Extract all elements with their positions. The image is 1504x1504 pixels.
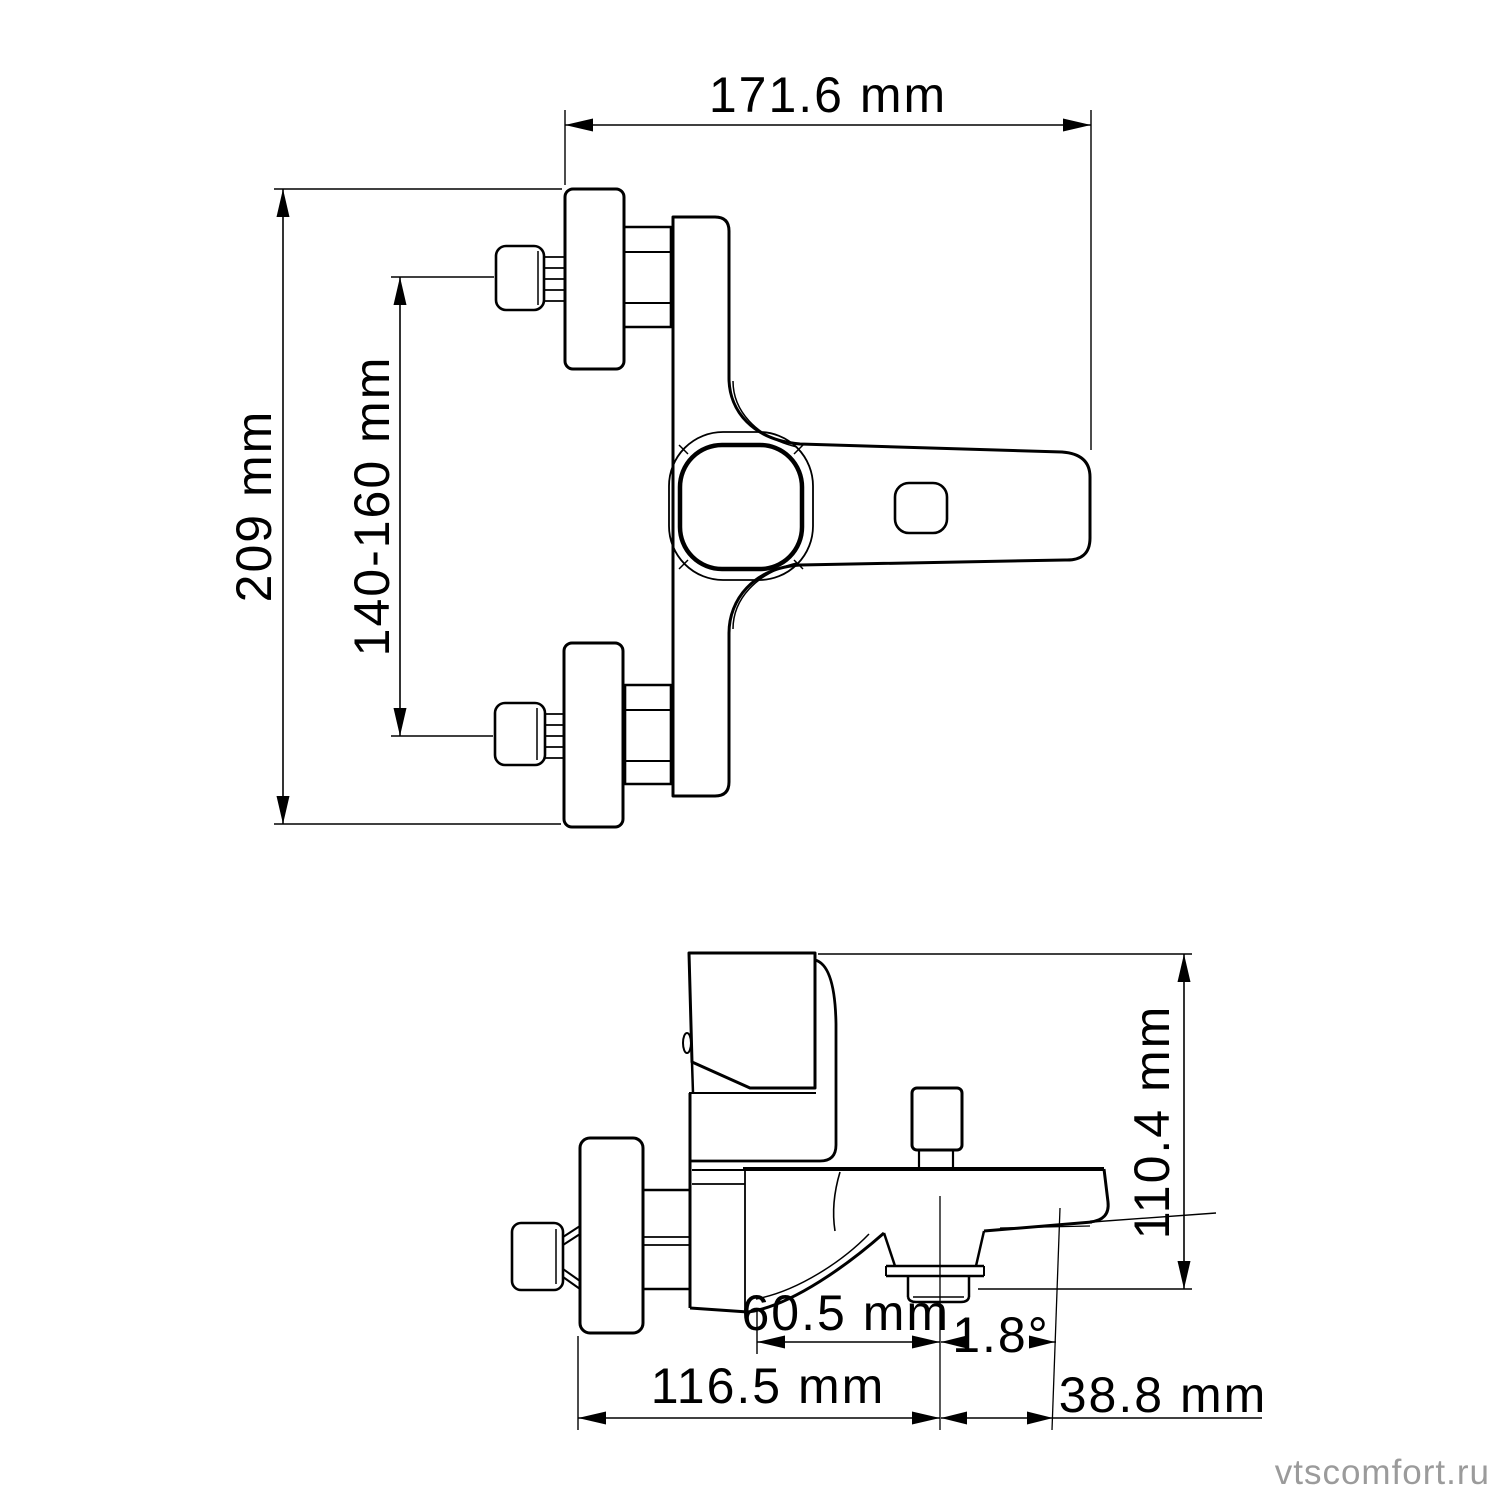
aerator-boss-right — [976, 1231, 984, 1266]
side-mount — [512, 1138, 690, 1333]
dimension-label-width: 171.6 mm — [709, 67, 947, 123]
spout-tip-edge — [1090, 1169, 1108, 1222]
upper-thread-lines — [544, 257, 565, 301]
dimension-tip-offset-38: 38.8 mm — [941, 1367, 1267, 1425]
front-body — [669, 217, 1090, 796]
lower-wall-flange — [564, 643, 623, 827]
front-view — [495, 189, 1090, 827]
dimension-label-side-height: 110.4 mm — [1124, 1005, 1180, 1240]
arrowhead-top — [1178, 954, 1191, 982]
lower-hex-nut — [625, 685, 671, 784]
dimension-label-spout-center: 60.5 mm — [741, 1285, 950, 1341]
arrowhead-bottom — [394, 708, 407, 736]
diverter-knob — [912, 1088, 962, 1169]
arrowhead-bottom — [1178, 1261, 1191, 1289]
dimension-label-mount-spacing: 140-160 mm — [344, 356, 400, 657]
spout-ring-inner — [680, 445, 802, 569]
technical-drawing-page: 171.6 mm 209 mm 140-160 mm 110.4 mm 60.5… — [0, 0, 1504, 1504]
side-wall-flange — [580, 1138, 643, 1333]
upper-fitting — [496, 246, 544, 310]
handle-detail-dot — [683, 1033, 691, 1053]
dimension-label-depth: 116.5 mm — [651, 1358, 886, 1414]
front-lower-mount — [495, 643, 671, 827]
dimension-height-110: 110.4 mm — [818, 954, 1192, 1289]
lower-thread-lines — [545, 714, 564, 758]
faucet-dimension-drawing: 171.6 mm 209 mm 140-160 mm 110.4 mm 60.5… — [0, 0, 1504, 1504]
aerator-boss-left — [884, 1233, 895, 1266]
watermark-text: vtscomfort.ru — [1275, 1453, 1490, 1492]
upper-hex-nut — [624, 227, 671, 327]
arrowhead-left — [578, 1412, 606, 1425]
arrowhead-right — [1027, 1412, 1053, 1425]
arrowhead-right — [912, 1412, 940, 1425]
arrowhead-bottom — [277, 796, 290, 824]
dimension-mount-spacing: 140-160 mm — [344, 277, 494, 736]
side-handle-outline — [689, 953, 815, 1088]
dimension-depth-116: 116.5 mm — [578, 1336, 940, 1430]
arrowhead-top — [277, 189, 290, 217]
side-hex-nut — [643, 1190, 690, 1289]
dimension-label-height: 209 mm — [226, 410, 282, 603]
side-nipple-lines — [563, 1226, 580, 1289]
arrowhead-left — [941, 1412, 967, 1425]
dimension-spout-angle: 1.8° — [941, 1208, 1060, 1430]
arrowhead-right — [1063, 119, 1091, 132]
handle-left-lower-edge — [692, 1062, 693, 1093]
diverter-knob-body — [912, 1088, 962, 1150]
dimension-label-tip-offset: 38.8 mm — [1059, 1367, 1268, 1423]
arrowhead-top — [394, 277, 407, 305]
upper-wall-flange — [565, 189, 624, 369]
top-fillet-crease — [733, 381, 797, 447]
front-upper-mount — [496, 189, 671, 369]
dimension-label-angle: 1.8° — [952, 1307, 1050, 1363]
side-body — [683, 953, 836, 1308]
spout-ring-corner-ticks — [679, 445, 803, 569]
spout-face-crease — [834, 1172, 840, 1231]
dimension-width-171: 171.6 mm — [565, 67, 1091, 450]
arrowhead-left — [565, 119, 593, 132]
body-and-lever-outline — [673, 217, 1090, 796]
side-view — [512, 953, 1216, 1333]
lever-button — [895, 483, 947, 533]
